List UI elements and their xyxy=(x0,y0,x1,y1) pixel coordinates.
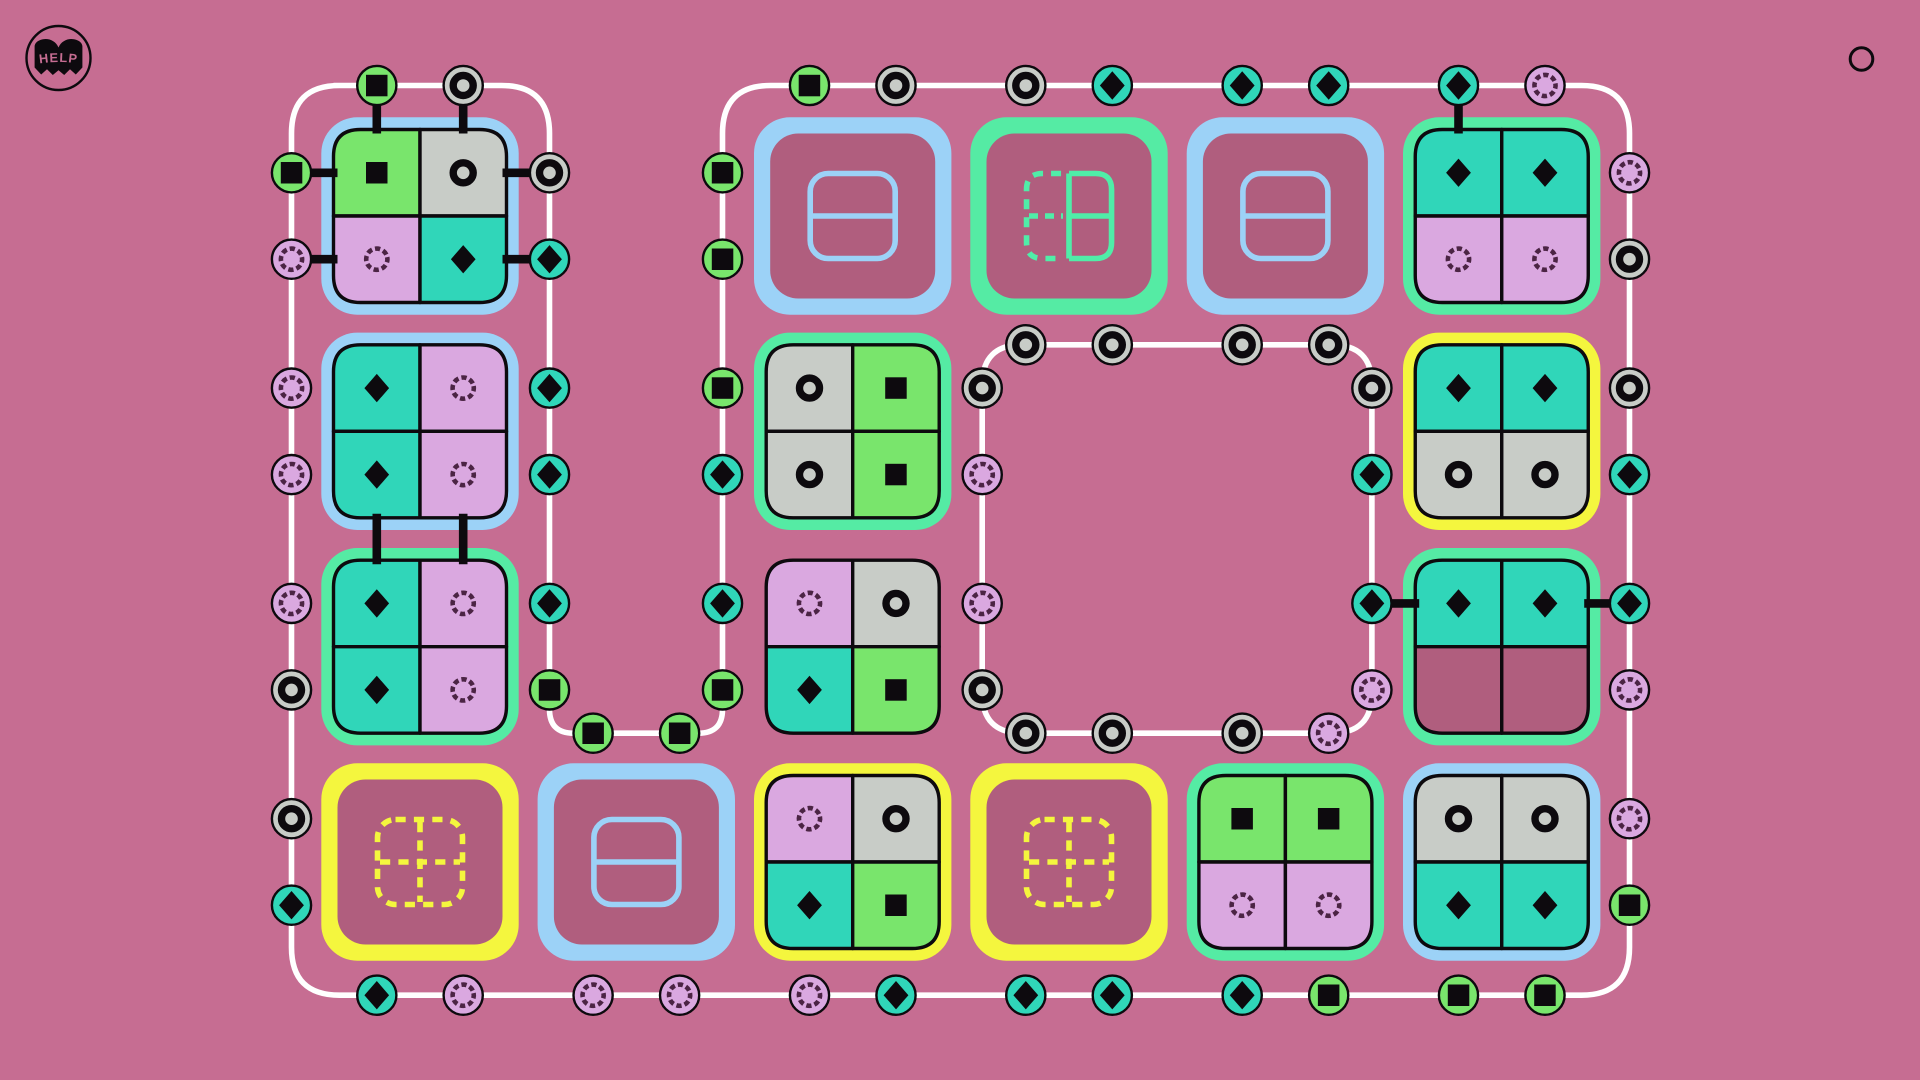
svg-text:HELP: HELP xyxy=(38,50,79,66)
